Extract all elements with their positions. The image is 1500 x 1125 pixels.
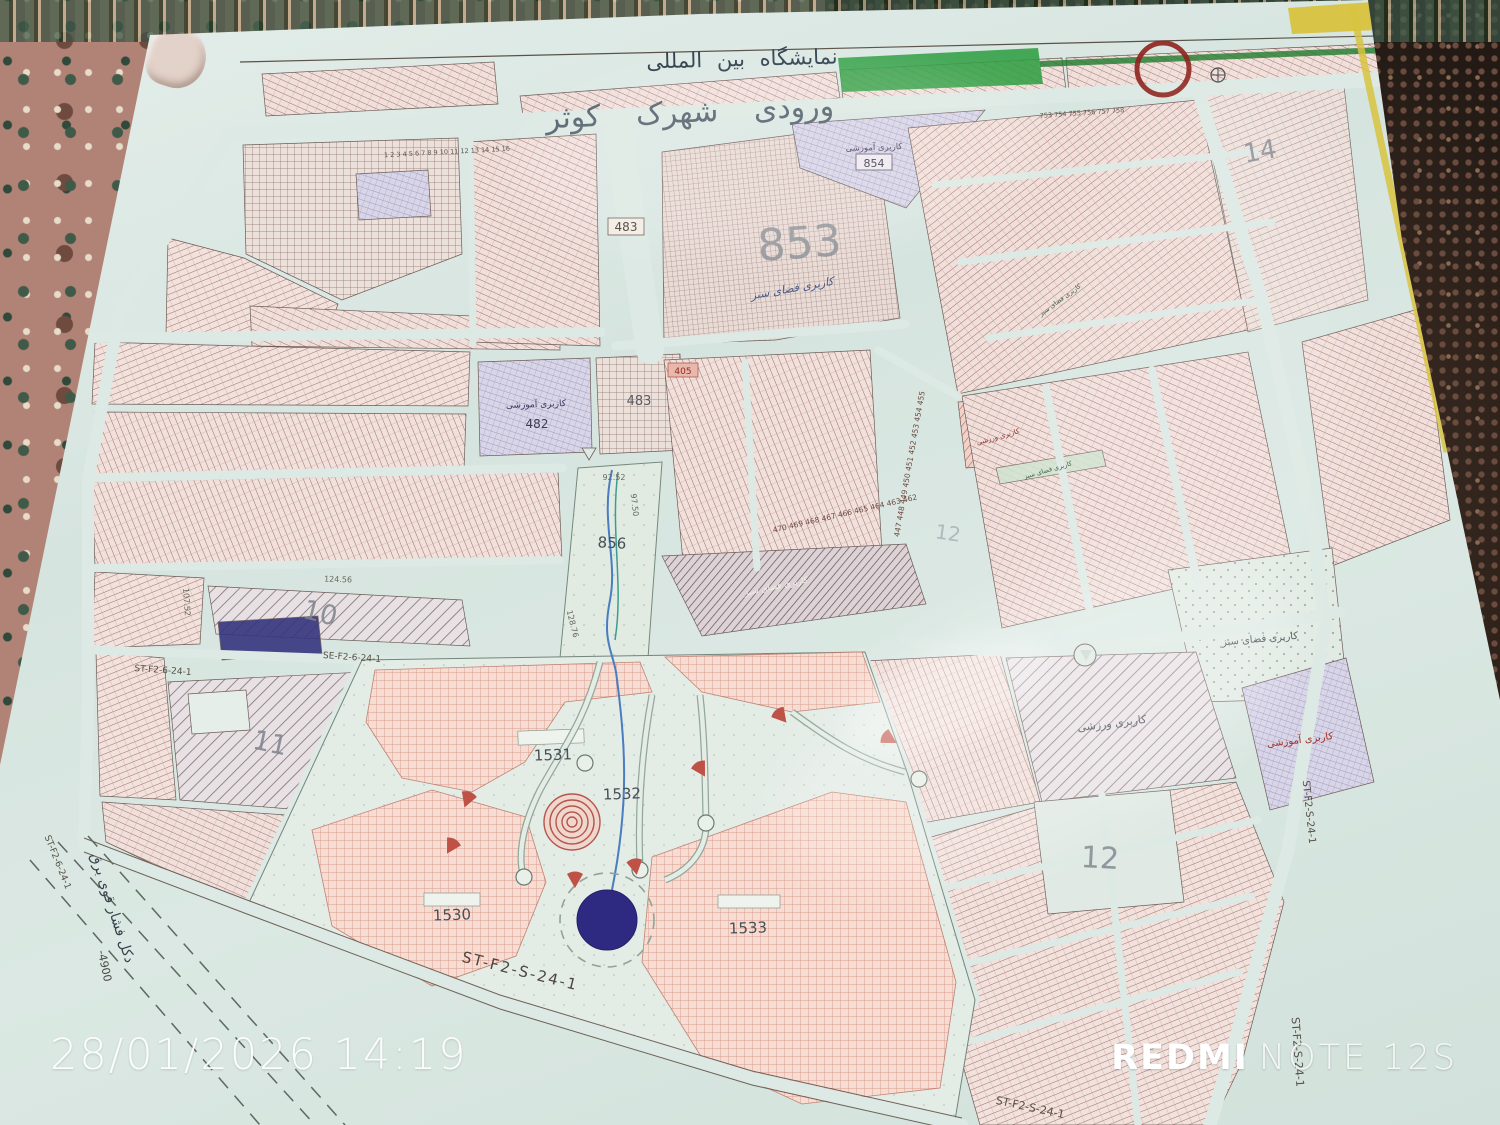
zone-1531: 1531	[534, 745, 573, 764]
zone-856: 856	[597, 533, 627, 552]
zone-1532: 1532	[603, 784, 642, 803]
zone-854: 854	[864, 157, 885, 170]
zone-1533: 1533	[729, 918, 768, 937]
zone-405: 405	[674, 367, 691, 377]
street-st-6-24-b: ST-F2-6-24-1	[42, 834, 73, 891]
brand-name: REDMI	[1111, 1038, 1249, 1078]
zone-12: 12	[1080, 840, 1120, 877]
camera-brand-watermark: REDMINOTE 12S	[1111, 1038, 1458, 1078]
brand-model: NOTE 12S	[1259, 1038, 1458, 1078]
pond-circle	[577, 890, 637, 950]
map-sheet: نمایشگاه بین المللی ورودی شهرک کوثر 853 …	[0, 0, 1500, 1125]
zone-483-box: 483	[615, 220, 638, 234]
amphitheater-spiral	[544, 794, 600, 850]
zone-1530: 1530	[433, 905, 472, 924]
zone-483b: 483	[627, 394, 652, 409]
measure-3: 124.56	[324, 575, 352, 585]
zone-12-faint: 12	[934, 519, 963, 546]
zone-853: 853	[756, 215, 843, 272]
measure-1: 92.52	[603, 473, 626, 482]
camera-timestamp: 28/01/2026 14:19	[50, 1030, 467, 1080]
parcel-col-right: 447 448 449 450 451 452 453 454 455	[892, 390, 927, 537]
zone-482: 482	[526, 417, 549, 431]
zone-14: 14	[1241, 134, 1279, 169]
photo-of-zoning-map: نمایشگاه بین المللی ورودی شهرک کوثر 853 …	[0, 0, 1500, 1125]
map-title: نمایشگاه بین المللی	[646, 45, 838, 74]
map-drawing: نمایشگاه بین المللی ورودی شهرک کوثر 853 …	[0, 0, 1500, 1125]
